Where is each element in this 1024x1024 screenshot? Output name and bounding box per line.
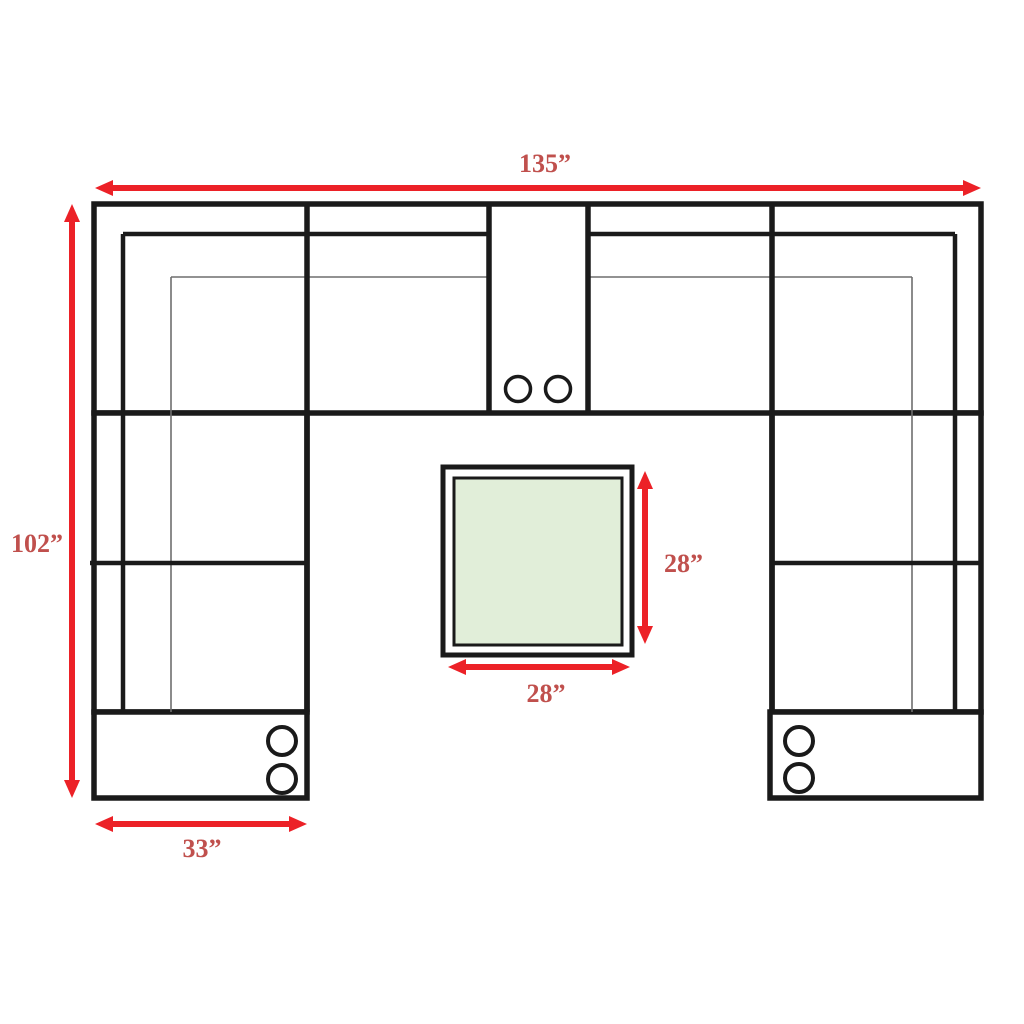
overall-width-label: 135” [519,149,571,178]
arrow-right-icon [963,180,981,196]
right-end-cup-holder-icon [785,727,813,755]
table-width-label: 28” [527,679,566,708]
dimension-table-depth: 28” [637,471,703,644]
left-end-cup-holder-icon [268,765,296,793]
overall-depth-label: 102” [11,529,63,558]
sectional-dimension-diagram: 135” 102” 33” 28” 28” [0,0,1024,1024]
arrow-right-icon [289,816,307,832]
table-top [454,478,622,645]
dimension-overall-depth: 102” [11,204,80,798]
floor-plan-canvas: 135” 102” 33” 28” 28” [0,0,1024,1024]
arrow-left-icon [448,659,466,675]
right-end-cup-holder-icon [785,764,813,792]
arrow-up-icon [637,471,653,489]
chaise-width-label: 33” [183,834,222,863]
dimension-table-width: 28” [448,659,630,708]
console-cup-holder-icon [546,377,571,402]
dimension-overall-width: 135” [95,149,981,196]
cocktail-table [443,467,632,655]
arrow-left-icon [95,180,113,196]
dimension-chaise-width: 33” [95,816,307,863]
arrow-left-icon [95,816,113,832]
console-cup-holder-icon [506,377,531,402]
arrow-right-icon [612,659,630,675]
arrow-down-icon [637,626,653,644]
arrow-down-icon [64,780,80,798]
left-end-cup-holder-icon [268,727,296,755]
table-depth-label: 28” [664,549,703,578]
arrow-up-icon [64,204,80,222]
